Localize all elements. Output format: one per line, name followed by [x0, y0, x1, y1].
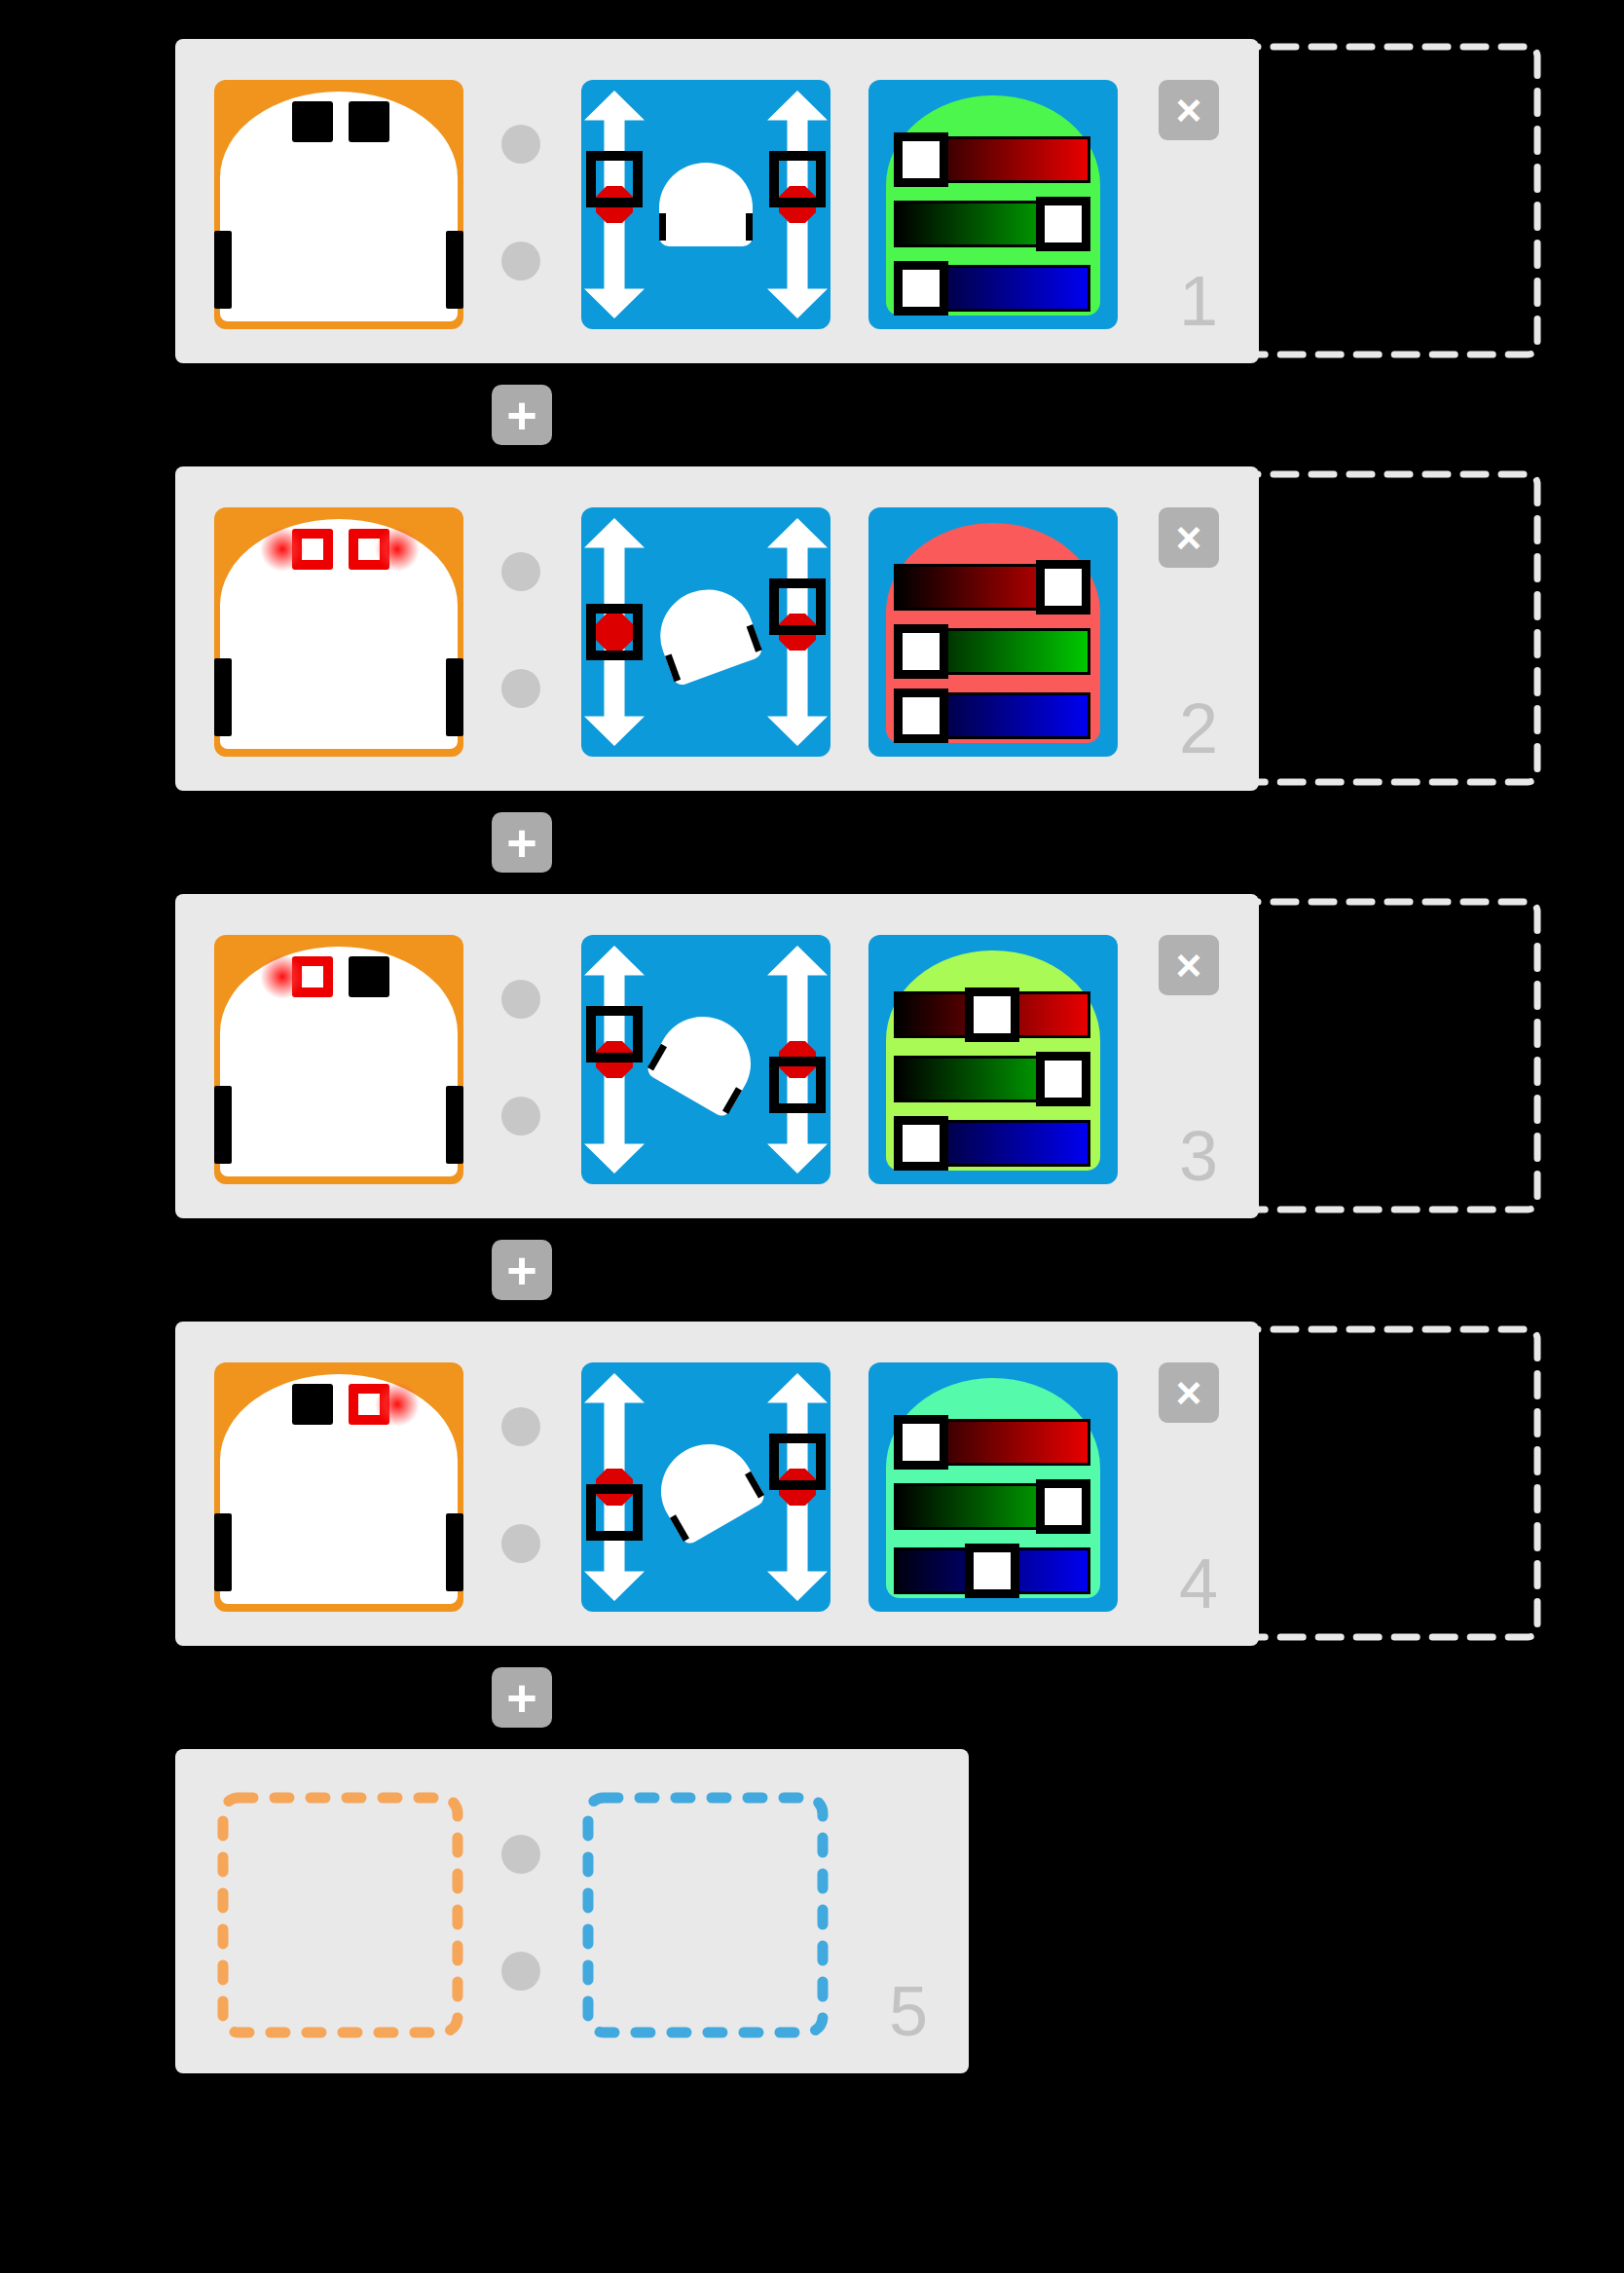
robot-motion-preview	[645, 1000, 767, 1119]
red-channel-slider[interactable]	[965, 987, 1019, 1042]
program-row: × 4	[0, 1322, 1624, 1646]
row-number: 1	[1179, 266, 1218, 336]
green-channel-slider[interactable]	[1036, 197, 1090, 251]
blue-channel-slider[interactable]	[894, 1116, 948, 1171]
red-channel-slider[interactable]	[894, 132, 948, 187]
robot-left-wheel	[214, 1513, 232, 1591]
robot-left-wheel	[214, 658, 232, 736]
action-block-motors[interactable]	[581, 935, 830, 1184]
blue-channel-slider[interactable]	[965, 1544, 1019, 1598]
blue-channel-slider[interactable]	[894, 689, 948, 743]
event-block-sensors[interactable]	[214, 1362, 463, 1612]
robot-front-shape	[220, 947, 458, 1176]
action-drop-target[interactable]	[1249, 43, 1541, 360]
row-number: 4	[1179, 1548, 1218, 1619]
proximity-sensor-right-black[interactable]	[349, 956, 389, 997]
event-block-sensors[interactable]	[214, 935, 463, 1184]
robot-front-shape	[220, 1374, 458, 1604]
robot-motion-preview	[645, 1428, 767, 1546]
left-motor-slider-handle[interactable]	[586, 151, 643, 207]
left-motor-slider-handle[interactable]	[586, 1006, 643, 1062]
program-row: × 2	[0, 466, 1624, 791]
action-drop-target[interactable]	[1249, 470, 1541, 788]
row-number: 3	[1179, 1121, 1218, 1191]
action-block-led-color[interactable]	[868, 1362, 1118, 1612]
blue-channel-slider[interactable]	[894, 261, 948, 316]
vpl-program-canvas: × 1 +	[0, 0, 1624, 2273]
red-channel-slider[interactable]	[1036, 560, 1090, 615]
pair-link-dot	[501, 1524, 540, 1563]
robot-top-shape	[647, 577, 764, 688]
action-drop-target[interactable]	[1249, 898, 1541, 1215]
left-motor-slider-handle[interactable]	[586, 604, 643, 660]
sensor-active-glow	[375, 1382, 420, 1427]
sensor-active-glow	[260, 527, 305, 572]
event-action-pair-card: × 3	[175, 894, 1259, 1218]
proximity-sensor-left-black[interactable]	[292, 101, 333, 142]
event-action-pair-card: × 1	[175, 39, 1259, 363]
insert-row-button[interactable]: +	[492, 1667, 552, 1728]
robot-right-wheel	[446, 231, 463, 309]
program-row: × 3	[0, 894, 1624, 1218]
pair-link-dot	[501, 1407, 540, 1446]
right-motor-slider-handle[interactable]	[769, 1057, 826, 1113]
action-block-led-color[interactable]	[868, 80, 1118, 329]
sensor-active-glow	[375, 527, 420, 572]
action-drop-target[interactable]	[1249, 1325, 1541, 1643]
pair-link-dot	[501, 552, 540, 591]
action-block-led-color[interactable]	[868, 507, 1118, 757]
event-action-pair-card: × 4	[175, 1322, 1259, 1646]
event-action-pair-card: × 2	[175, 466, 1259, 791]
insert-row-button[interactable]: +	[492, 1240, 552, 1300]
delete-row-button[interactable]: ×	[1159, 935, 1219, 995]
proximity-sensor-right-black[interactable]	[349, 101, 389, 142]
robot-left-wheel	[214, 1086, 232, 1164]
robot-top-shape	[659, 163, 753, 246]
delete-row-button[interactable]: ×	[1159, 507, 1219, 568]
action-block-motors[interactable]	[581, 507, 830, 757]
green-channel-slider[interactable]	[894, 624, 948, 679]
row-number: 5	[889, 1976, 928, 2046]
robot-top-shape	[645, 1000, 767, 1119]
pair-link-dot	[501, 1097, 540, 1136]
program-row-empty: 5	[0, 1749, 1624, 2073]
robot-right-wheel	[446, 658, 463, 736]
insert-row-button[interactable]: +	[492, 385, 552, 445]
robot-left-wheel	[214, 231, 232, 309]
robot-right-wheel	[446, 1086, 463, 1164]
left-motor-slider-handle[interactable]	[586, 1484, 643, 1541]
right-motor-slider-handle[interactable]	[769, 578, 826, 635]
insert-row-button[interactable]: +	[492, 812, 552, 873]
action-block-motors[interactable]	[581, 1362, 830, 1612]
robot-front-shape	[220, 519, 458, 749]
robot-right-wheel	[746, 213, 753, 241]
action-block-motors[interactable]	[581, 80, 830, 329]
robot-right-wheel	[446, 1513, 463, 1591]
robot-top-shape	[645, 1428, 767, 1546]
robot-motion-preview	[659, 163, 753, 246]
red-channel-slider[interactable]	[894, 1415, 948, 1470]
pair-link-dot	[501, 1835, 540, 1874]
row-number: 2	[1179, 693, 1218, 764]
pair-link-dot	[501, 1952, 540, 1991]
right-motor-slider-handle[interactable]	[769, 1434, 826, 1490]
pair-link-dot	[501, 125, 540, 164]
empty-pair-card: 5	[175, 1749, 969, 2073]
action-block-placeholder[interactable]	[582, 1792, 829, 2038]
robot-left-wheel	[659, 213, 666, 241]
delete-row-button[interactable]: ×	[1159, 80, 1219, 140]
right-motor-slider-handle[interactable]	[769, 151, 826, 207]
green-channel-slider[interactable]	[1036, 1479, 1090, 1534]
event-block-sensors[interactable]	[214, 507, 463, 757]
pair-link-dot	[501, 669, 540, 708]
program-row: × 1	[0, 39, 1624, 363]
event-block-placeholder[interactable]	[217, 1792, 463, 2038]
robot-motion-preview	[647, 577, 764, 688]
event-block-sensors[interactable]	[214, 80, 463, 329]
robot-front-shape	[220, 92, 458, 321]
green-channel-slider[interactable]	[1036, 1052, 1090, 1106]
proximity-sensor-left-black[interactable]	[292, 1384, 333, 1425]
pair-link-dot	[501, 980, 540, 1019]
action-block-led-color[interactable]	[868, 935, 1118, 1184]
sensor-active-glow	[260, 954, 305, 999]
pair-link-dot	[501, 242, 540, 280]
delete-row-button[interactable]: ×	[1159, 1362, 1219, 1423]
